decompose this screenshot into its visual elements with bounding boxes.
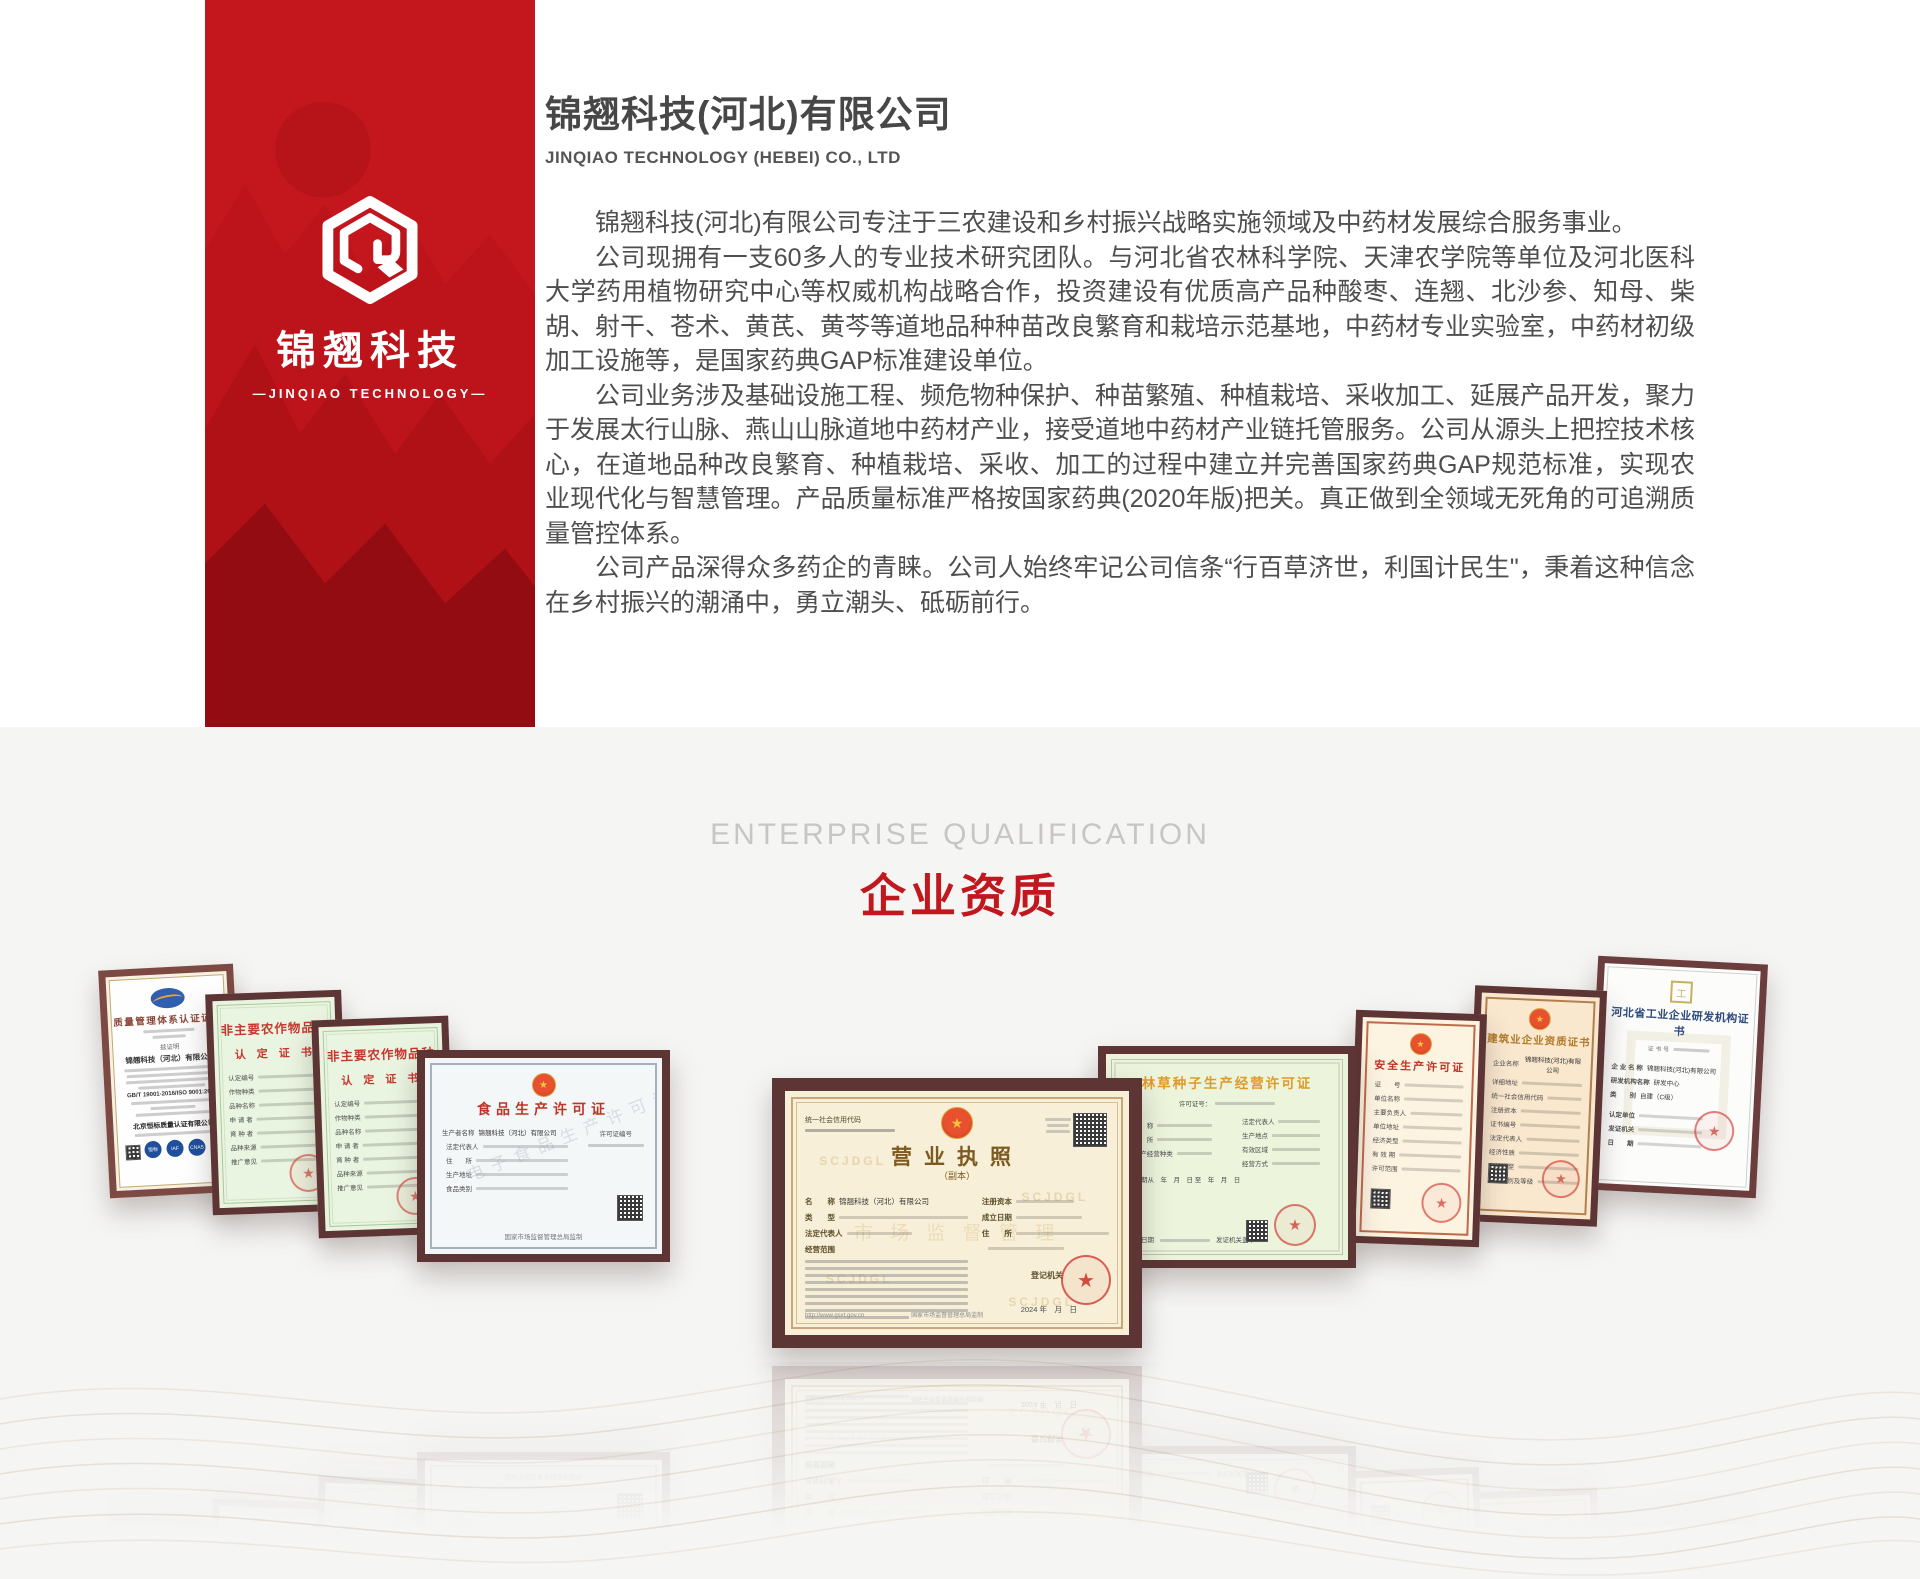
credit-code: 统一社会信用代码: [805, 1115, 895, 1136]
certificate-food-production: 电子食品生产许可证 ★ 食品生产许可证 生产者名称 锦翘科技（河北）有限公司 法…: [417, 1050, 670, 1262]
validity-text: 有效期从 年 月 日 至 年 月 日: [1112, 1174, 1342, 1184]
certificate-fields: 证 号单位名称主要负责人单位地址经济类型有 效 期许可范围: [1363, 1078, 1471, 1176]
certifier-logo-icon: [150, 987, 185, 1009]
qr-notes: [1045, 1115, 1071, 1136]
certificate-rd-institution: 工 河北省工业企业研发机构证书 证 书 号 企 业 名 称锦翘科技(河北)有限公…: [1586, 956, 1768, 1199]
red-seal-icon: ★: [1541, 1159, 1581, 1199]
license-number: 许可证号：: [1112, 1098, 1342, 1108]
company-intro-section: 锦翘科技 —JINQIAO TECHNOLOGY— 锦翘科技(河北)有限公司 J…: [0, 0, 1920, 727]
certificate-footer: 国家市场监督管理总局监制: [911, 1310, 983, 1319]
brand-banner: 锦翘科技 —JINQIAO TECHNOLOGY—: [205, 0, 535, 728]
national-emblem-icon: ★: [532, 1073, 556, 1097]
certificate-title: 建筑业企业资质证书: [1486, 1031, 1593, 1051]
issue-block: 发证日期 发证机关盖章: [1128, 1234, 1255, 1244]
certificate-safety-production: ★ 安全生产许可证 证 号单位名称主要负责人单位地址经济类型有 效 期许可范围 …: [1348, 1010, 1487, 1247]
company-title-cn: 锦翘科技(河北)有限公司: [545, 84, 1695, 138]
certificate-title: 安全生产许可证: [1367, 1056, 1472, 1076]
section-heading-cn: 企业资质: [0, 860, 1920, 926]
logo-en-text: —JINQIAO TECHNOLOGY—: [205, 386, 535, 401]
qualification-section: ENTERPRISE QUALIFICATION 企业资质 质量管理体系认证证书…: [0, 727, 1920, 1579]
red-seal-icon: ★: [1421, 1182, 1462, 1223]
qr-code-icon: [1246, 1220, 1268, 1242]
badge-icon: 恒标: [144, 1141, 162, 1159]
page: 锦翘科技 —JINQIAO TECHNOLOGY— 锦翘科技(河北)有限公司 J…: [0, 0, 1920, 1579]
qr-code-icon: [1488, 1163, 1509, 1184]
qr-code-icon: [1370, 1188, 1391, 1209]
section-heading: ENTERPRISE QUALIFICATION 企业资质: [0, 818, 1920, 926]
company-intro: 锦翘科技(河北)有限公司 JINQIAO TECHNOLOGY (HEBEI) …: [545, 84, 1695, 620]
section-heading-en: ENTERPRISE QUALIFICATION: [0, 818, 1920, 852]
company-logo-icon: [316, 196, 424, 304]
national-emblem-icon: ★: [1409, 1033, 1432, 1056]
license-fields-left: 名 称 锦翘科技（河北）有限公司 类 型 法定代表人 经营范围: [803, 1191, 970, 1323]
certificate-title: 营业执照: [793, 1141, 1121, 1171]
badge-icon: CNAS: [188, 1138, 206, 1156]
intro-paragraph: 公司现拥有一支60多人的专业技术研究团队。与河北省农林科学院、天津农学院等单位及…: [545, 241, 1695, 379]
badge-icon: IAF: [166, 1139, 184, 1157]
company-title-en: JINQIAO TECHNOLOGY (HEBEI) CO., LTD: [545, 148, 1695, 168]
red-seal-icon: ★: [1274, 1204, 1316, 1246]
national-emblem-icon: ★: [941, 1107, 973, 1139]
certificate-title: 林草种子生产经营许可证: [1112, 1072, 1342, 1092]
intro-paragraph: 公司产品深得众多药企的青睐。公司人始终牢记公司信条“行百草济世，利国计民生"，秉…: [545, 551, 1695, 620]
license-number: 许可证编号: [585, 1123, 647, 1150]
red-seal-icon: ★: [1061, 1255, 1111, 1305]
qr-code-icon: [1073, 1113, 1107, 1147]
registry-url: http://www.gsxt.gov.cn: [805, 1313, 864, 1319]
registrar-label: 登记机关: [1031, 1270, 1063, 1281]
intro-paragraph: 公司业务涉及基础设施工程、频危物种保护、种苗繁殖、种植栽培、采收加工、延展产品开…: [545, 379, 1695, 552]
certificate-company: 锦翘科技（河北）有限公司: [839, 1196, 929, 1207]
certificate-footer: 国家市场监督管理总局监制: [432, 1231, 655, 1241]
certificate-subtitle: （副本）: [793, 1169, 1121, 1182]
certificate-company: 锦翘科技(河北)有限公司: [1522, 1053, 1583, 1076]
company-logo: 锦翘科技 —JINQIAO TECHNOLOGY—: [205, 196, 535, 401]
certificate-business-license: SCJDGL SCJDGL SCJDGL SCJDGL 市 场 监 督 管 理 …: [772, 1078, 1142, 1348]
field-label: 生产者名称: [442, 1127, 475, 1137]
intro-paragraph: 锦翘科技(河北)有限公司专注于三农建设和乡村振兴战略实施领域及中药材发展综合服务…: [545, 206, 1695, 241]
certificates-row: 质量管理体系认证证书 兹证明 锦翘科技（河北）有限公司 GB/T 19001-2…: [0, 952, 1920, 1352]
logo-cn-text: 锦翘科技: [205, 318, 535, 376]
national-emblem-icon: ★: [1528, 1008, 1551, 1031]
qr-code-icon: [617, 1195, 643, 1221]
qr-code-icon: [125, 1145, 141, 1161]
field-label: 企业名称: [1493, 1057, 1519, 1068]
certificate-fields: 名 称住 所生产经营种类法定代表人生产地点有效区域经营方式: [1126, 1116, 1328, 1168]
intro-paragraphs: 锦翘科技(河北)有限公司专注于三农建设和乡村振兴战略实施领域及中药材发展综合服务…: [545, 206, 1695, 620]
issue-date: 2024 年 月 日: [1021, 1304, 1077, 1315]
institution-mark-icon: 工: [1670, 981, 1693, 1004]
